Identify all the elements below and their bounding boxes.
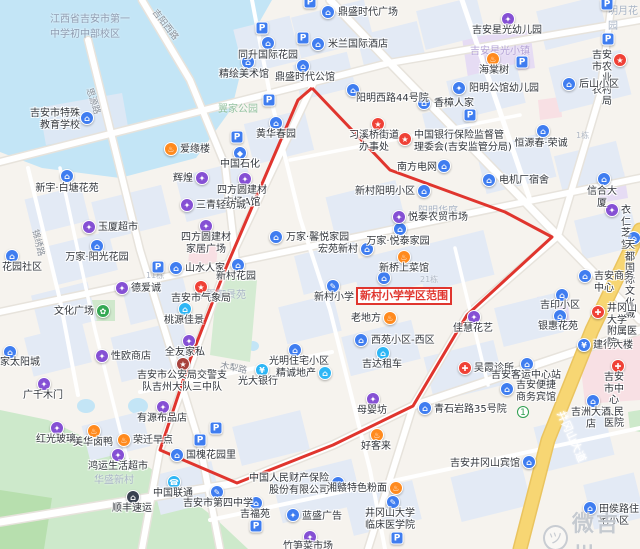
poi-label[interactable]: 吉安市公安局交警支 队吉州大队三中队 (137, 370, 227, 393)
poi-marker[interactable]: ♨ (117, 433, 131, 447)
poi-red-icon: ✚ (458, 361, 472, 375)
poi-marker[interactable]: ★ (194, 280, 208, 294)
poi-blue-icon: ⌂ (597, 172, 611, 186)
poi-label[interactable]: 新桥上菜馆 (379, 263, 429, 275)
poi-blue-icon: ⌂ (321, 5, 335, 19)
poi-red-icon: ✚ (591, 305, 605, 319)
poi-purple-icon: ✦ (50, 421, 64, 435)
poi-orange-icon: ♨ (397, 250, 411, 264)
poi-label[interactable]: 银惠花苑 (538, 321, 578, 333)
area-label: 翼家公园 (218, 100, 258, 115)
route-badge: 1 (517, 406, 529, 418)
poi-orange-icon: ♨ (117, 433, 131, 447)
poi-label[interactable]: 新村花园 (216, 271, 256, 283)
poi-blue-icon: ⌂ (578, 269, 592, 283)
poi-blue-icon: ⌂ (482, 173, 496, 187)
poi-orange-icon: ♨ (383, 311, 397, 325)
poi-label[interactable]: 国槐花园里 (186, 450, 236, 462)
poi-label[interactable]: 宏苑新村 (318, 244, 358, 256)
parking-icon[interactable]: P (391, 532, 404, 545)
poi-marker[interactable]: ★ (398, 132, 412, 146)
poi-label[interactable]: 习溪桥街道 办事处 (349, 130, 399, 153)
poi-blue-icon: ◆ (233, 146, 247, 160)
poi-label[interactable]: 吉安便捷 商务宾馆 (516, 380, 556, 403)
poi-label[interactable]: 米兰国际酒店 (328, 39, 388, 51)
poi-label[interactable]: 老地方 (351, 313, 381, 325)
poi-blue-icon: ⌂ (536, 124, 550, 138)
poi-label[interactable]: 红光玻璃 (36, 434, 76, 446)
poi-purple-icon: ✦ (182, 334, 196, 348)
poi-label[interactable]: 万家·馨悦家园 (286, 232, 349, 244)
poi-marker[interactable]: ⌂ (597, 172, 611, 186)
poi-purple-icon: ✦ (180, 198, 194, 212)
watermark-text: 微吉州 (572, 506, 640, 549)
parking-icon[interactable]: P (304, 0, 317, 9)
poi-label[interactable]: 性欧商店 (111, 351, 151, 363)
poi-red-icon: ★ (613, 53, 627, 67)
poi-label[interactable]: 新宇·白塘花苑 (35, 183, 98, 195)
poi-label[interactable]: 黄华春园 (256, 129, 296, 141)
poi-label[interactable]: 精诚地产 (276, 368, 316, 380)
poi-marker[interactable]: ✦ (115, 281, 129, 295)
poi-blue-icon: ⌂ (393, 222, 407, 236)
poi-label[interactable]: 悦泰农贸市场 (408, 212, 468, 224)
poi-label[interactable]: 青石岩路35号院 (434, 404, 507, 416)
poi-marker[interactable]: ⌂ (562, 77, 576, 91)
poi-label[interactable]: 精绘美术馆 (219, 69, 269, 81)
poi-marker[interactable]: ✿ (96, 304, 110, 318)
poi-marker[interactable]: ⌂ (393, 222, 407, 236)
poi-label[interactable]: 新村阳明小区 (355, 186, 415, 198)
poi-marker[interactable]: ¥ (577, 338, 591, 352)
poi-label[interactable]: 中国石化 (220, 159, 260, 171)
poi-marker[interactable]: ♨ (397, 250, 411, 264)
poi-marker[interactable]: ✦ (180, 198, 194, 212)
poi-marker[interactable]: ★ (613, 53, 627, 67)
poi-marker[interactable]: ⌂ (522, 455, 536, 469)
poi-marker[interactable]: ⌂ (90, 239, 104, 253)
poi-label[interactable]: 玉厦超市 (98, 222, 138, 234)
poi-marker[interactable]: ⌂ (311, 37, 325, 51)
area-label: 江西省吉安市第一 中学初中部校区 (50, 10, 130, 40)
poi-marker[interactable]: ⌂ (376, 346, 390, 360)
poi-marker[interactable]: ✦ (467, 310, 481, 324)
poi-blue-icon: ⌂ (269, 116, 283, 130)
poi-label[interactable]: 荣迁早点 (133, 435, 173, 447)
poi-label[interactable]: 万家·悦泰家园 (366, 236, 429, 248)
poi-blue-icon: ⌂ (437, 159, 451, 173)
poi-label[interactable]: 四方圆建材 家居广场 (181, 232, 231, 255)
poi-blue-icon: ⌂ (269, 230, 283, 244)
poi-label[interactable]: 光大银行 (238, 376, 278, 388)
poi-blue-icon: ⌂ (90, 239, 104, 253)
poi-purple-icon: ✦ (366, 392, 380, 406)
parking-icon[interactable]: P (601, 0, 614, 11)
poi-blue-icon: ⌂ (311, 37, 325, 51)
poi-blue-icon: ✦ (452, 81, 466, 95)
poi-teal-icon: ⌂ (376, 346, 390, 360)
poi-blue-icon: ⌂ (418, 401, 432, 415)
poi-marker[interactable]: ✦ (366, 392, 380, 406)
watermark: ツ 微吉州 (543, 506, 640, 549)
poi-orange-icon: ♨ (87, 424, 101, 438)
poi-marker[interactable]: ⌂ (170, 448, 184, 462)
poi-label[interactable]: 信合大厦 (583, 186, 621, 209)
poi-marker[interactable]: ✦ (392, 210, 406, 224)
poi-red-icon: ★ (398, 132, 412, 146)
poi-label[interactable]: 桃源佳景 (164, 315, 204, 327)
area-label: 21栋 (420, 274, 438, 285)
parking-icon[interactable]: P (464, 109, 477, 122)
poi-marker[interactable]: ⌂ (261, 36, 275, 50)
poi-marker[interactable]: ✚ (611, 359, 625, 373)
parking-icon[interactable]: P (602, 33, 615, 46)
poi-marker[interactable]: ⌂ (231, 258, 245, 272)
poi-label[interactable]: 后山小区 (579, 79, 619, 91)
poi-red-icon: ★ (194, 280, 208, 294)
poi-blue-icon: ⌂ (231, 258, 245, 272)
poi-label[interactable]: 湘赣特色粉面 (327, 483, 387, 495)
poi-blue-icon: ⌂ (586, 394, 600, 408)
poi-label[interactable]: 吉福苑 (240, 509, 270, 521)
poi-label[interactable]: 吉印小区 (540, 300, 580, 312)
poi-marker[interactable]: ✦ (195, 171, 209, 185)
poi-purple-icon: ✦ (37, 377, 51, 391)
poi-purple-icon: ✦ (115, 281, 129, 295)
poi-label[interactable]: 好客来 (361, 441, 391, 453)
poi-marker[interactable]: ✚ (458, 361, 472, 375)
poi-label[interactable]: 井冈山大学 临床医学院 (365, 508, 415, 531)
poi-marker[interactable]: ⌂ (80, 111, 94, 125)
poi-label[interactable]: 阳明公馆幼儿园 (469, 83, 539, 95)
poi-marker[interactable]: ✦ (452, 81, 466, 95)
poi-marker[interactable]: ⌂ (318, 366, 332, 380)
poi-marker[interactable]: ✦ (182, 334, 196, 348)
poi-label[interactable]: 吉达租车 (362, 359, 402, 371)
poi-marker[interactable]: ⌂ (578, 269, 592, 283)
poi-label[interactable]: 中国人民财产保险 股份有限公司 (249, 473, 329, 496)
parking-icon[interactable]: P (263, 94, 276, 107)
poi-marker[interactable]: ✎ (210, 485, 224, 499)
poi-label[interactable]: 香樟人家 (434, 98, 474, 110)
poi-blue-icon: ⌂ (354, 333, 368, 347)
parking-icon[interactable]: P (250, 520, 263, 533)
poi-marker[interactable]: ✦ (286, 508, 300, 522)
poi-label[interactable]: 吉安井冈山宾馆 (450, 458, 520, 470)
poi-marker[interactable]: ⌂ (520, 357, 534, 371)
poi-marker[interactable]: ✦ (37, 377, 51, 391)
poi-marker[interactable]: ⌂ (354, 333, 368, 347)
poi-orange-icon: ♨ (370, 428, 384, 442)
poi-label[interactable]: 阳明西路44号院 (356, 93, 429, 105)
poi-label[interactable]: 吉安市特殊 教育学校 (30, 108, 80, 131)
poi-purple-icon: ✦ (238, 172, 252, 186)
poi-label[interactable]: 万家·阳光花园 (65, 252, 128, 264)
poi-marker[interactable]: ⌂ (482, 173, 496, 187)
poi-blue-icon: ⌂ (170, 448, 184, 462)
poi-marker[interactable]: ♨ (389, 481, 403, 495)
poi-label[interactable]: 南方电网 (397, 162, 437, 174)
poi-purple-icon: ✦ (199, 219, 213, 233)
poi-blue-icon: ⌂ (562, 77, 576, 91)
map-canvas[interactable]: ⌂吉安市特殊 教育学校⌂新宇·白塘花苑♨爱缘楼⌂鼎盛时代广场⌂米兰国际酒店⌂同升… (0, 0, 640, 549)
poi-label[interactable]: 吉安市气象局 (171, 293, 231, 305)
poi-label[interactable]: 恒源春·荣诚 (514, 138, 567, 150)
poi-label[interactable]: 三青轻纺城 (196, 200, 246, 212)
poi-marker[interactable]: ⌂ (269, 116, 283, 130)
watermark-bird-icon: ツ (543, 525, 568, 549)
poi-marker[interactable]: ⌂ (126, 490, 140, 504)
poi-label[interactable]: 鸿运生活超市 (88, 461, 148, 473)
poi-marker[interactable]: ⌂ (321, 5, 335, 19)
parking-icon[interactable]: P (231, 131, 244, 144)
poi-label[interactable]: 有源布品店 (137, 413, 187, 425)
poi-marker[interactable]: ♨ (87, 424, 101, 438)
poi-label[interactable]: 吉安商务中心 (594, 271, 640, 294)
poi-label[interactable]: 吉洲大酒店 (567, 407, 616, 430)
poi-orange-icon: ♨ (389, 481, 403, 495)
poi-blue-icon: ⌂ (288, 343, 302, 357)
poi-marker[interactable]: ◆ (233, 146, 247, 160)
poi-label[interactable]: 电机厂宿舍 (499, 175, 549, 187)
parking-icon[interactable]: P (297, 32, 310, 45)
poi-blue-icon: ⌂ (417, 184, 431, 198)
poi-marker[interactable]: ★ (371, 117, 385, 131)
poi-marker[interactable]: ✦ (50, 421, 64, 435)
poi-dark-icon: ⌂ (126, 490, 140, 504)
poi-purple-icon: ✦ (467, 310, 481, 324)
poi-blue-icon: ⌂ (500, 382, 514, 396)
poi-label[interactable]: 鼎盛时代广场 (338, 7, 398, 19)
area-label: 1栋 (576, 130, 589, 141)
poi-label[interactable]: 辉煌 (173, 173, 193, 185)
poi-darkred-icon: ★ (176, 357, 190, 371)
poi-orange-icon: ♨ (486, 52, 500, 66)
poi-blue-icon: ⌂ (520, 357, 534, 371)
poi-blue-icon: ✦ (286, 508, 300, 522)
poi-marker[interactable]: ⌂ (169, 261, 183, 275)
poi-marker[interactable]: ✦ (238, 172, 252, 186)
parking-icon[interactable]: P (256, 22, 269, 35)
poi-label[interactable]: 新村小学 (314, 292, 354, 304)
poi-blue-icon: ¥ (577, 338, 591, 352)
poi-marker[interactable]: ♨ (486, 52, 500, 66)
poi-label[interactable]: 竹笋菜市场 (283, 541, 333, 549)
poi-marker[interactable]: ✦ (111, 448, 125, 462)
poi-blue-icon: ✎ (386, 495, 400, 509)
poi-label[interactable]: 顺丰速运 (112, 503, 152, 515)
poi-purple-icon: ✦ (156, 400, 170, 414)
poi-label[interactable]: 母婴坊 (357, 405, 387, 417)
poi-marker[interactable]: ✎ (386, 495, 400, 509)
poi-blue-icon: ⌂ (80, 111, 94, 125)
poi-marker[interactable]: ♨ (164, 142, 178, 156)
parking-icon[interactable]: P (516, 56, 529, 69)
poi-purple-icon: ✦ (501, 12, 515, 26)
poi-label[interactable]: 蓝盛广告 (302, 511, 342, 523)
poi-purple-icon: ✦ (95, 349, 109, 363)
poi-label[interactable]: 井冈山大学 附属医院 (607, 303, 640, 349)
poi-teal-icon: ⌂ (318, 366, 332, 380)
poi-red-icon: ✚ (611, 359, 625, 373)
poi-marker[interactable]: ☎ (167, 475, 181, 489)
area-label: 华盛新村 (94, 471, 134, 486)
poi-marker[interactable]: ⌂ (437, 159, 451, 173)
poi-blue-icon: ⌂ (5, 249, 19, 263)
poi-marker[interactable]: ✦ (501, 12, 515, 26)
poi-blue-icon: ⌂ (261, 36, 275, 50)
poi-label[interactable]: 光明住宅小区 (269, 356, 329, 368)
poi-label[interactable]: 西苑小区-西区 (371, 335, 435, 347)
poi-label[interactable]: 吉安星光幼儿园 (472, 25, 542, 37)
poi-marker[interactable]: ⌂ (60, 169, 74, 183)
poi-marker[interactable]: ✦ (95, 349, 109, 363)
poi-label[interactable]: 家太阳城 (0, 357, 40, 369)
poi-purple-icon: ✦ (82, 220, 96, 234)
poi-marker[interactable]: ⌂ (586, 394, 600, 408)
poi-blue-icon: ✎ (326, 279, 340, 293)
poi-marker[interactable]: ⌂ (296, 59, 310, 73)
poi-blue-icon: ⌂ (169, 261, 183, 275)
poi-blue-icon: ⌂ (296, 59, 310, 73)
poi-teal-icon: ☎ (167, 475, 181, 489)
poi-purple-icon: ✦ (195, 171, 209, 185)
poi-label[interactable]: 同升国际花园 (238, 50, 298, 62)
poi-purple-icon: ✦ (392, 210, 406, 224)
poi-blue-icon: ⌂ (522, 455, 536, 469)
poi-marker[interactable]: ⌂ (269, 230, 283, 244)
poi-label[interactable]: 吉安市第四中学 (183, 498, 253, 510)
poi-label[interactable]: 花园社区 (2, 262, 42, 274)
poi-marker[interactable]: ✦ (156, 400, 170, 414)
parking-icon[interactable]: P (152, 261, 165, 274)
poi-label[interactable]: 中国银行保险监督管 理委会(吉安监管分局) (414, 130, 512, 153)
parking-icon[interactable]: P (194, 434, 207, 447)
poi-marker[interactable]: ★ (176, 357, 190, 371)
poi-marker[interactable]: ✦ (199, 219, 213, 233)
poi-orange-icon: ♨ (164, 142, 178, 156)
poi-label[interactable]: 全友家私 (165, 347, 205, 359)
poi-teal-icon: ¥ (255, 363, 269, 377)
poi-marker[interactable]: ⌂ (536, 124, 550, 138)
poi-marker[interactable]: ⌂ (288, 343, 302, 357)
poi-label[interactable]: 爱缘楼 (180, 144, 210, 156)
poi-label[interactable]: 德爱诚 (131, 283, 161, 295)
poi-label[interactable]: 文化广场 (54, 306, 94, 318)
poi-marker[interactable]: ⌂ (500, 382, 514, 396)
parking-icon[interactable]: P (210, 422, 223, 435)
school-district-highlight-label[interactable]: 新村小学学区范围 (356, 287, 452, 305)
poi-label[interactable]: 广千木门 (23, 390, 63, 402)
poi-red-icon: ★ (371, 117, 385, 131)
poi-label[interactable]: 海棠树 (479, 65, 509, 77)
poi-marker[interactable]: ✦ (82, 220, 96, 234)
poi-marker[interactable]: ⌂ (418, 401, 432, 415)
poi-green-icon: ✿ (96, 304, 110, 318)
poi-marker[interactable]: ♨ (370, 428, 384, 442)
poi-marker[interactable]: ¥ (255, 363, 269, 377)
poi-marker[interactable]: ⌂ (417, 184, 431, 198)
poi-marker[interactable]: ✚ (591, 305, 605, 319)
poi-label[interactable]: 佳慧花艺 (453, 323, 493, 335)
poi-marker[interactable]: ✎ (326, 279, 340, 293)
poi-marker[interactable]: ⌂ (5, 249, 19, 263)
poi-label[interactable]: 鼎盛时代公馆 (275, 72, 335, 84)
poi-blue-icon: ✎ (210, 485, 224, 499)
poi-marker[interactable]: ♨ (383, 311, 397, 325)
poi-purple-icon: ✦ (111, 448, 125, 462)
poi-blue-icon: ⌂ (60, 169, 74, 183)
poi-label[interactable]: 美华卤鸭 (73, 437, 113, 449)
